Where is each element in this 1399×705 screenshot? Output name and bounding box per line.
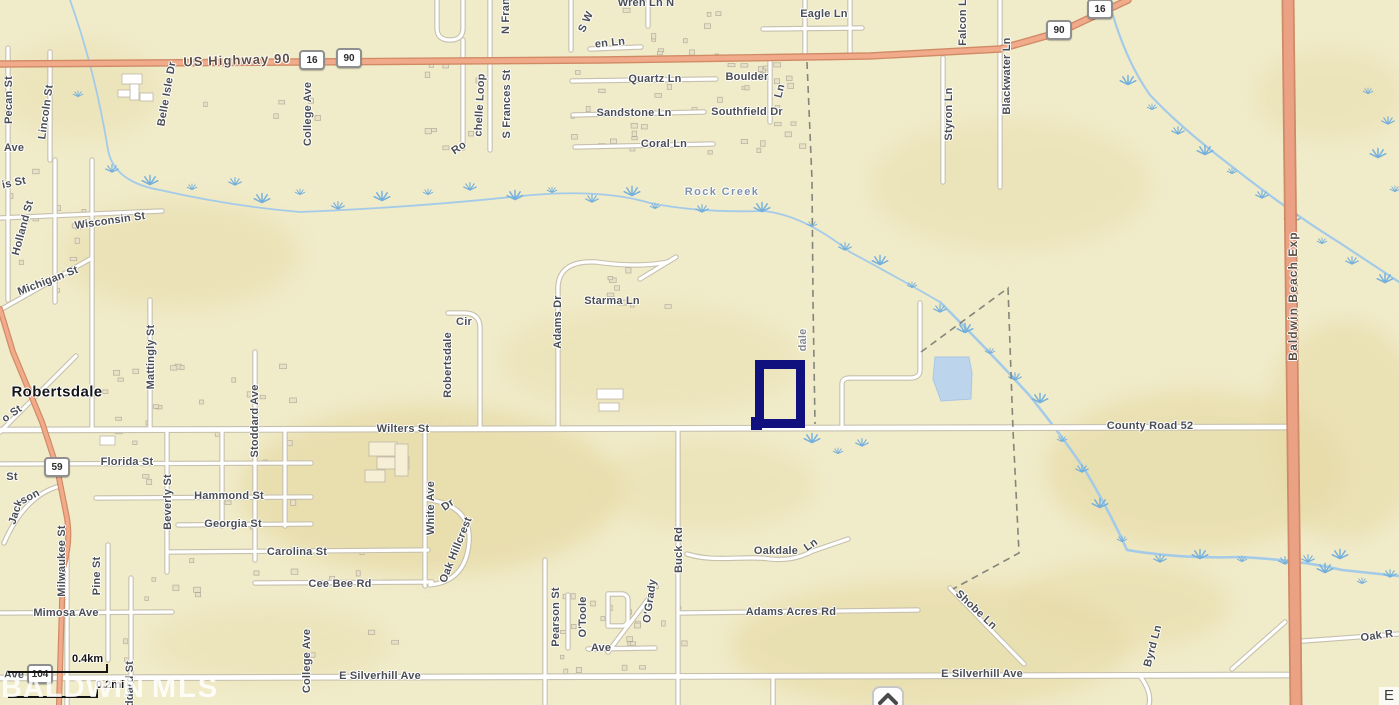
scale-km-bar (8, 671, 108, 673)
scale-km-label: 0.4km (72, 653, 103, 665)
scale-km-tick (106, 664, 108, 673)
northeast-creek (1110, 5, 1399, 282)
terrain-shading-layer (0, 40, 1399, 705)
base-map-layer (0, 0, 1399, 705)
pond (933, 357, 972, 401)
scale-mi-bar (8, 696, 98, 698)
scale-mi-label: 0.2mi (96, 679, 124, 691)
chevron-up-button[interactable] (872, 686, 904, 705)
scale-mi-tick (96, 689, 98, 698)
map-canvas: 0.4km 0.2mi BALDWINMLS E US Highway 90Pe… (0, 0, 1399, 705)
map-attribution: E (1379, 687, 1399, 705)
highway-59-road (0, 309, 68, 705)
chevron-up-icon (876, 691, 900, 705)
us-highway-90-road (0, 0, 1128, 64)
